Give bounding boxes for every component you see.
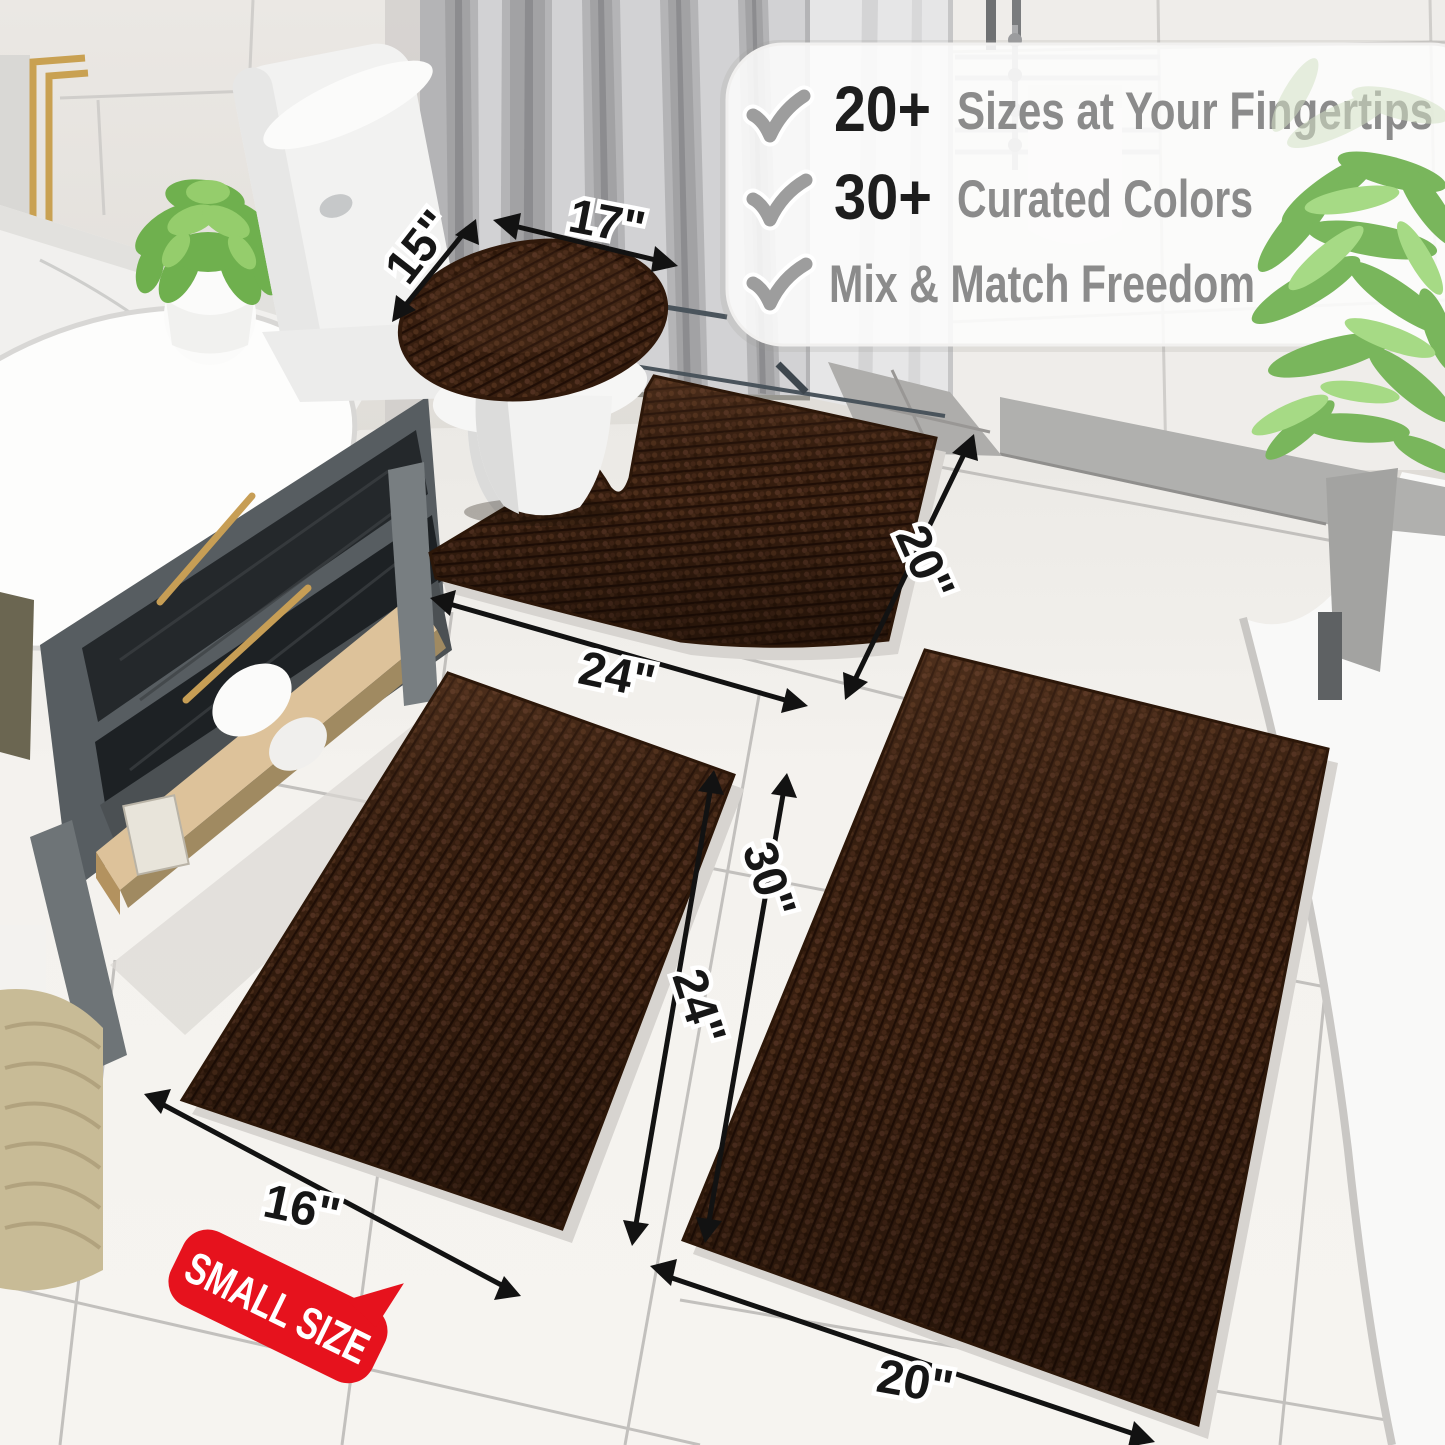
svg-text:20+: 20+: [834, 73, 931, 145]
svg-text:Mix & Match Freedom: Mix & Match Freedom: [829, 255, 1255, 314]
svg-text:Curated Colors: Curated Colors: [957, 170, 1253, 229]
svg-text:30+: 30+: [834, 161, 932, 233]
